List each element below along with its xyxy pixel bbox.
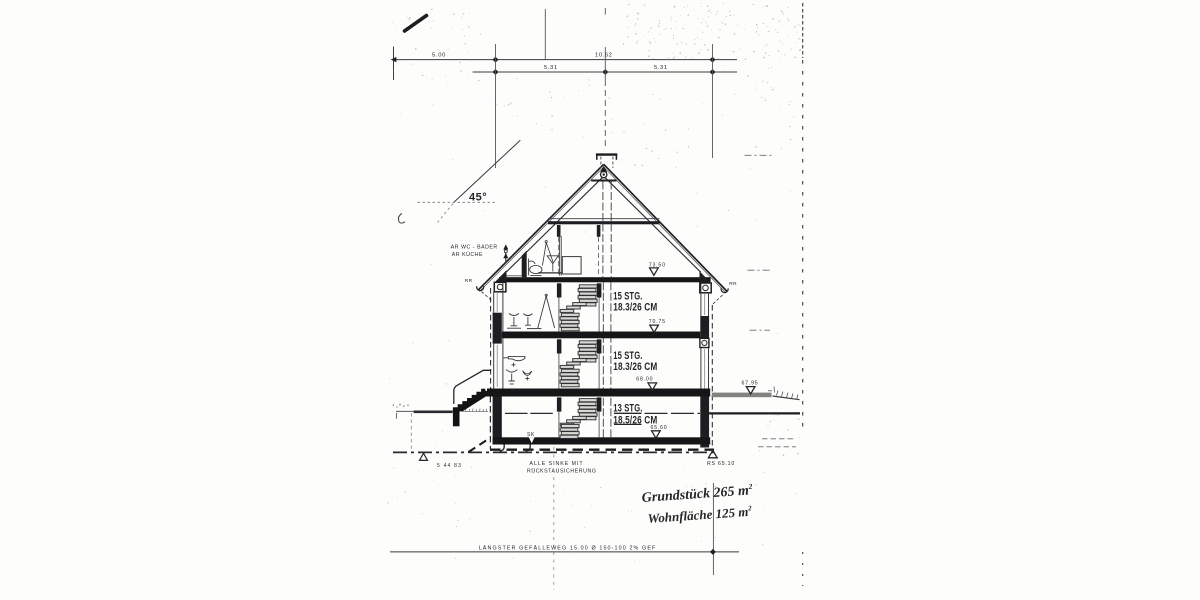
svg-text:65.60: 65.60 — [651, 425, 668, 431]
svg-text:LÄNGSTER GEFÄLLEWEG 15.00 Ø: LÄNGSTER GEFÄLLEWEG 15.00 Ø 150-100 2% G… — [479, 545, 657, 552]
svg-text:13 STG.: 13 STG. — [613, 403, 642, 414]
svg-text:ALLE SINKE MIT: ALLE SINKE MIT — [530, 461, 584, 467]
svg-text:67.95: 67.95 — [742, 380, 759, 386]
svg-text:AR KÜCHE: AR KÜCHE — [452, 251, 483, 258]
svg-text:15 STG.: 15 STG. — [613, 290, 642, 301]
svg-text:AR WC - BADER: AR WC - BADER — [451, 245, 498, 251]
svg-text:18.3/26 CM: 18.3/26 CM — [613, 361, 657, 373]
svg-text:15 STG.: 15 STG. — [613, 350, 642, 361]
svg-text:RR: RR — [465, 278, 473, 284]
svg-text:5.31: 5.31 — [654, 65, 668, 71]
svg-text:68.00: 68.00 — [636, 376, 653, 382]
svg-text:5.00: 5.00 — [432, 52, 446, 58]
svg-text:RR: RR — [729, 281, 737, 287]
svg-text:RÜCKSTAUSICHERUNG: RÜCKSTAUSICHERUNG — [527, 468, 596, 475]
svg-text:70.75: 70.75 — [649, 319, 666, 325]
svg-text:45°: 45° — [469, 192, 487, 204]
svg-text:SK: SK — [527, 432, 535, 438]
svg-text:RS 65.10: RS 65.10 — [707, 461, 735, 467]
svg-text:10.62: 10.62 — [595, 52, 613, 58]
svg-text:5.31: 5.31 — [544, 65, 558, 71]
svg-text:5 44 83: 5 44 83 — [437, 463, 462, 469]
svg-text:18.3/26 CM: 18.3/26 CM — [613, 301, 657, 313]
